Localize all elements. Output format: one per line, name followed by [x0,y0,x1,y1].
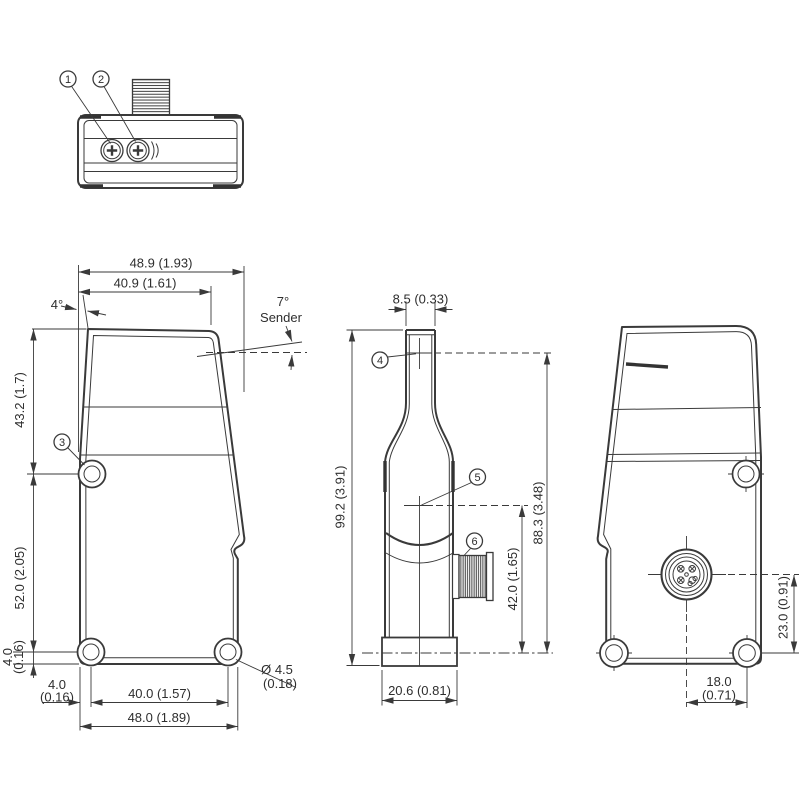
dim-side-width-neck-label: 8.5 (0.33) [393,292,449,307]
dim-side-depth-base-label: 20.6 (0.81) [388,683,451,698]
adjustment-screw-1 [101,140,123,162]
mounting-hole-bottom-right [215,639,242,666]
dim-front-offset-side-in: (0.16) [40,690,74,705]
front-view-outline [80,329,244,664]
callout-6-number: 6 [471,536,477,548]
dim-back-hole-offset-in: (0.71) [702,688,736,703]
dim-front-height-holes-label: 52.0 (2.05) [12,547,27,610]
dim-side-height-overall-label: 99.2 (3.91) [333,466,348,529]
mounting-hole-top-left [79,461,106,488]
mounting-hole-bottom-left [78,639,105,666]
side-view-connector-thread [459,556,487,598]
callout-1-number: 1 [65,74,71,86]
dim-front-width-holes-label: 40.0 (1.57) [128,686,191,701]
dim-front-width-top-label: 40.9 (1.61) [114,276,177,291]
dim-front-width-overall-label: 48.9 (1.93) [130,256,193,271]
dim-side-height-connector-label: 42.0 (1.65) [505,548,520,611]
callout-2-number: 2 [98,74,104,86]
dim-back-connector-offset-label: 23.0 (0.91) [776,576,791,639]
adjustment-screw-2 [127,140,149,162]
sender-label: Sender [260,310,303,325]
dim-side-height-axis-top-label: 88.3 (3.48) [531,482,546,545]
dim-front-width-base-label: 48.0 (1.89) [128,710,191,725]
top-view-connector-thread [133,80,170,116]
callout-3-number: 3 [59,437,65,449]
dim-front-angle-housing-label: 4° [51,297,63,312]
dim-front-height-upper-label: 43.2 (1.7) [12,372,27,428]
dim-front-offset-bottom-in: (0.16) [11,640,26,674]
dim-front-angle-sender-label: 7° [277,294,289,309]
callout-4-number: 4 [377,355,383,367]
dim-front-hole-diameter-in: (0.18) [263,676,297,691]
dim-front-hole-diameter-mm: Ø 4.5 [261,662,293,677]
callout-5-number: 5 [474,472,480,484]
technical-drawing: 1 2 3 [0,0,800,800]
side-view-connector [453,553,494,601]
